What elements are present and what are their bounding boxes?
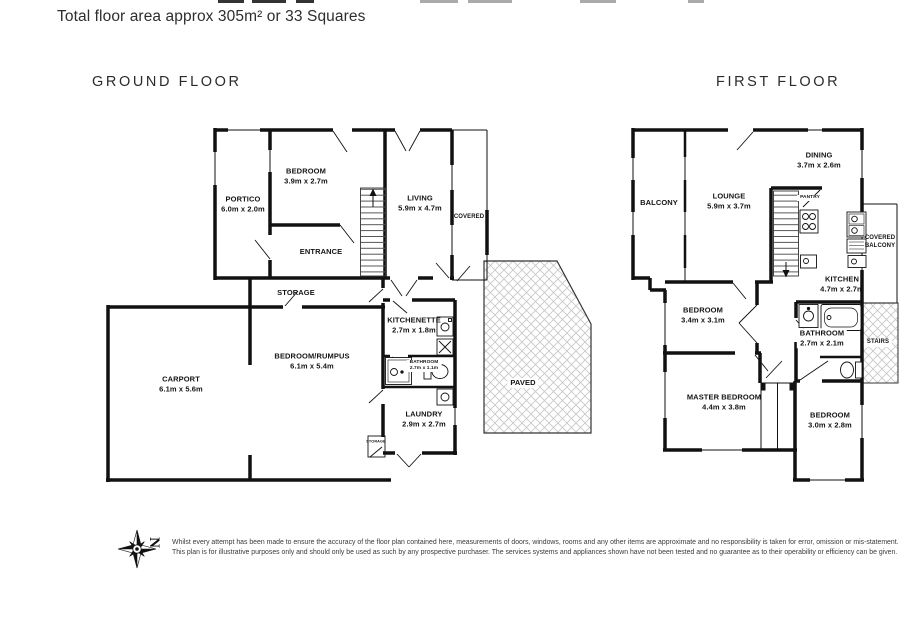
vanity-basin-icon xyxy=(799,305,818,328)
room-label-bedroom-gf: BEDROOM 3.9m x 2.7m xyxy=(284,166,328,186)
disclaimer-text: Whilst every attempt has been made to en… xyxy=(172,538,898,558)
compass-north-label: N xyxy=(145,537,162,548)
first-floor-fixtures xyxy=(799,210,866,378)
toilet-icon xyxy=(841,362,863,378)
kitchen-appliance-icon xyxy=(848,256,866,268)
room-label-kitchen: KITCHEN 4.7m x 2.7m xyxy=(820,274,864,294)
room-label-entrance: ENTRANCE xyxy=(300,247,342,257)
room-label-bathroom-ff: BATHROOM 2.7m x 2.1m xyxy=(797,328,847,348)
kitchenette-appliance-icon xyxy=(437,339,453,355)
room-label-portico: PORTICO 6.0m x 2.0m xyxy=(221,194,265,214)
wardrobe-closets xyxy=(761,383,794,449)
bathtub-icon xyxy=(821,305,861,331)
kitchen-sink-icon xyxy=(847,212,866,237)
ground-floor-staircase xyxy=(361,188,386,276)
room-label-bathroom-gf: BATHROOM 2.7m x 1.1m xyxy=(407,360,442,372)
room-label-covered-balcony: COVERED BALCONY xyxy=(865,235,895,251)
oven-icon xyxy=(801,255,817,268)
dishwasher-icon xyxy=(847,239,866,253)
room-label-bedroom2-ff: BEDROOM 3.0m x 2.8m xyxy=(808,410,852,430)
room-label-paved: PAVED xyxy=(507,378,538,388)
compass-icon xyxy=(118,530,156,568)
room-label-living: LIVING 5.9m x 4.7m xyxy=(398,193,442,213)
room-label-storage-small: STORAGE xyxy=(366,440,385,445)
floorplan-page: Total floor area approx 305m² or 33 Squa… xyxy=(0,0,900,636)
room-label-bedroom1-ff: BEDROOM 3.4m x 3.1m xyxy=(681,305,725,325)
first-floor-staircase xyxy=(774,191,799,278)
room-label-balcony: BALCONY xyxy=(640,198,678,208)
room-label-storage: STORAGE xyxy=(277,288,315,298)
cooktop-icon xyxy=(800,210,818,233)
room-label-carport: CARPORT 6.1m x 5.6m xyxy=(159,374,203,394)
laundry-trough-icon xyxy=(437,389,453,405)
room-label-stairs: STAIRS xyxy=(864,339,892,347)
room-label-dining: DINING 3.7m x 2.6m xyxy=(797,150,841,170)
room-label-bedroom-rumpus: BEDROOM/RUMPUS 6.1m x 5.4m xyxy=(274,351,349,371)
disclaimer-line-1: Whilst every attempt has been made to en… xyxy=(172,538,898,548)
room-label-covered: COVERED xyxy=(454,214,484,222)
room-label-pantry: PANTRY xyxy=(797,195,823,201)
room-label-master-bedroom: MASTER BEDROOM 4.4m x 3.8m xyxy=(687,392,761,412)
disclaimer-line-2: This plan is for illustrative purposes o… xyxy=(172,548,898,558)
room-label-lounge: LOUNGE 5.9m x 3.7m xyxy=(707,191,751,211)
paved-area-hatch xyxy=(484,261,591,433)
room-label-laundry: LAUNDRY 2.9m x 2.7m xyxy=(402,409,446,429)
room-label-kitchenette: KITCHENETTE 2.7m x 1.8m xyxy=(387,315,441,335)
